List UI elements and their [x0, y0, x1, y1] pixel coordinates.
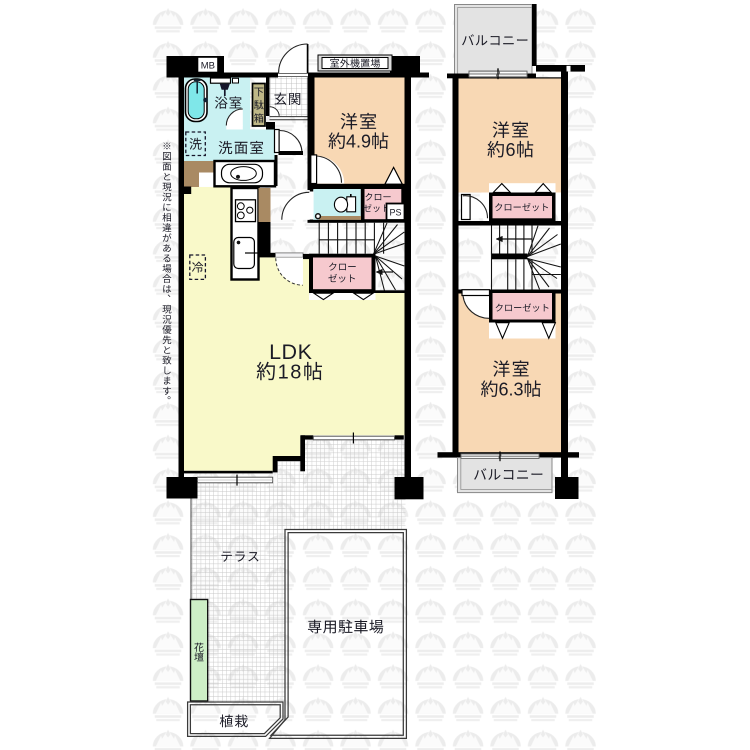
svg-text:LDK: LDK: [269, 340, 312, 364]
svg-text:18: 18: [278, 362, 303, 384]
svg-text:6: 6: [506, 140, 517, 160]
svg-text:4.9: 4.9: [346, 132, 371, 152]
svg-text:MB: MB: [201, 60, 215, 71]
svg-text:PS: PS: [390, 208, 402, 218]
svg-text:6.3: 6.3: [499, 380, 524, 400]
